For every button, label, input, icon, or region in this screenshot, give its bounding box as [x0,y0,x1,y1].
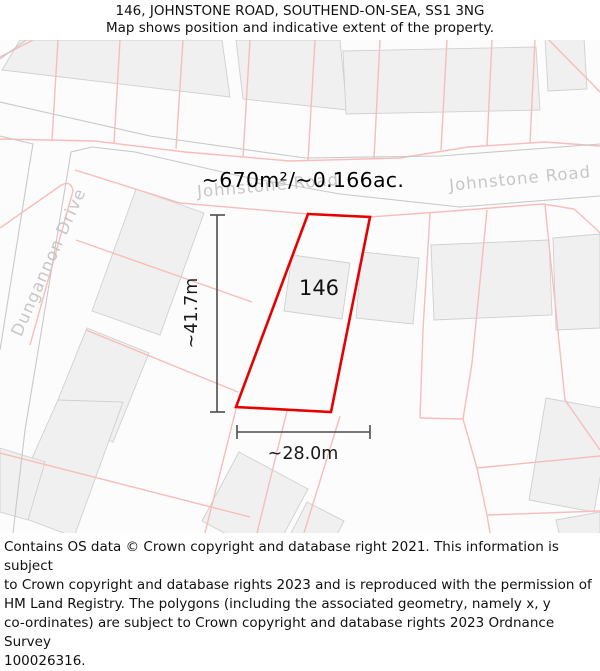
map-header: 146, JOHNSTONE ROAD, SOUTHEND-ON-SEA, SS… [0,0,600,40]
page-subtitle: Map shows position and indicative extent… [0,20,600,37]
area-label: ~670m²/~0.166ac. [202,168,404,192]
property-map: Johnstone Road Johnstone Road Dungannon … [0,40,600,533]
height-dimension-label: ~41.7m [182,278,202,349]
page-title: 146, JOHNSTONE ROAD, SOUTHEND-ON-SEA, SS… [0,3,600,20]
width-dimension-label: ~28.0m [268,444,339,464]
copyright-notice: Contains OS data © Crown copyright and d… [0,536,600,671]
map-canvas: Johnstone Road Johnstone Road Dungannon … [0,40,600,533]
plot-number-label: 146 [299,276,339,300]
